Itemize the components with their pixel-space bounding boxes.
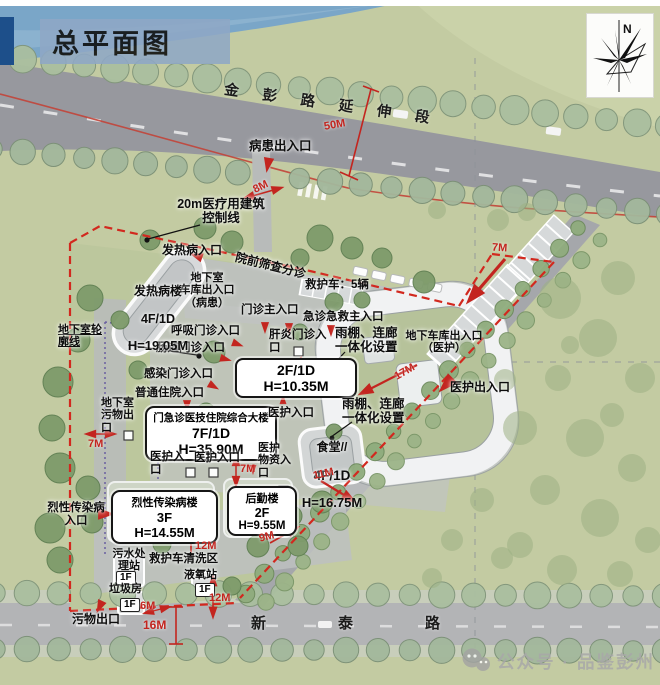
dim-7m-northeast: 7M (492, 241, 508, 254)
watermark-text: 公众号 · 品鉴彭州 (497, 649, 655, 674)
wing-floors: 2F/1D (240, 362, 352, 378)
compass-rose-icon (587, 14, 653, 97)
dim-12m-oxygen: 12M (209, 592, 230, 604)
page-title: 总平面图 (52, 22, 172, 61)
infectious-height: H=14.55M (116, 525, 213, 540)
dim-7m-mid: 7M (240, 463, 255, 475)
label-basement-waste-exit: 地下室 污物出 口 (101, 397, 134, 434)
infectious-name: 烈性传染病楼 (116, 494, 213, 510)
label-ambulance-count: 救护车：5辆 (305, 279, 369, 292)
label-hepatitis-entrance: 肝炎门诊入口 (269, 329, 331, 355)
site-plan: 总平面图 N 金彭路延伸段 新泰路 病患出入口 20m医疗用建筑 控制线 院前筛… (0, 0, 660, 685)
label-control-line: 20m医疗用建筑 控制线 (158, 197, 284, 225)
label-canopy-corridor-1: 雨棚、连廊 一体化设置 (335, 326, 398, 354)
main-building-name: 门急诊医技住院综合大楼 (150, 410, 272, 425)
dim-6m: 6M (140, 600, 155, 612)
infectious-floors: 3F (116, 510, 213, 525)
main-building-floors: 7F/1D (150, 425, 272, 441)
canteen-height: H=16.75M (302, 495, 362, 510)
label-staff-entrance-c: 医护入口 (268, 407, 314, 420)
label-garbage-room: 垃圾房 (109, 583, 142, 595)
compass: N (586, 13, 654, 98)
label-emergency-main-entrance: 急诊急救主入口 (303, 311, 384, 324)
label-staff-entrance-a: 医护入口 (150, 451, 192, 477)
label-infectious-entrance: 烈性传染病 入口 (40, 502, 112, 528)
car (546, 126, 562, 136)
logistics-floors: 2F (232, 506, 292, 520)
label-staff-exit: 医护出入口 (450, 381, 510, 394)
wechat-icon (462, 648, 492, 674)
label-staff-supplies-entrance: 医护 物资入 口 (258, 442, 291, 479)
fever-floors: 4F/1D (141, 312, 175, 326)
logistics-height: H=9.55M (232, 520, 292, 532)
tag-garbage-floors: 1F (120, 598, 140, 612)
wing-building-box: 2F/1D H=10.35M (235, 358, 357, 398)
label-fever-entrance: 发热病入口 (162, 244, 222, 257)
title-accent-bar (0, 17, 14, 65)
label-sewage-station: 污水处 理站 (106, 548, 152, 573)
label-canopy-corridor-2: 雨棚、连廊 一体化设置 (342, 397, 405, 425)
logistics-name: 后勤楼 (232, 490, 292, 506)
dim-12m-wash: 12M (195, 540, 216, 552)
label-outpatient-main-entrance: 门诊主入口 (241, 304, 299, 317)
label-patient-entrance: 病患出入口 (249, 139, 312, 153)
label-inpatient-entrance: 普通住院入口 (135, 387, 204, 400)
infectious-building-box: 烈性传染病楼 3F H=14.55M (111, 490, 218, 544)
title-bar: 总平面图 (40, 19, 230, 64)
dim-16m: 16M (143, 618, 166, 632)
wing-height: H=10.35M (240, 378, 352, 394)
label-staff-entrance-b: 医护入口 (194, 452, 240, 465)
logistics-building-box: 后勤楼 2F H=9.55M (227, 486, 297, 536)
label-ambulance-wash: 救护车清洗区 (149, 553, 218, 566)
label-oxygen-station: 液氧站 (184, 569, 217, 581)
fever-building-label: 发热病楼 4F/1D H=19.05M (96, 272, 220, 354)
compass-north-label: N (623, 22, 632, 36)
label-infection-entrance: 感染门诊入口 (144, 368, 213, 381)
fever-name: 发热病楼 (134, 284, 182, 298)
road-name-bottom: 新泰路 (251, 612, 512, 633)
label-waste-exit: 污物出口 (72, 613, 120, 626)
fever-height: H=19.05M (128, 338, 188, 353)
canteen-name: 食堂// (317, 440, 348, 454)
dim-7m-west: 7M (88, 438, 103, 450)
label-garage-staff: 地下车库出入口 （医护） (392, 330, 496, 355)
